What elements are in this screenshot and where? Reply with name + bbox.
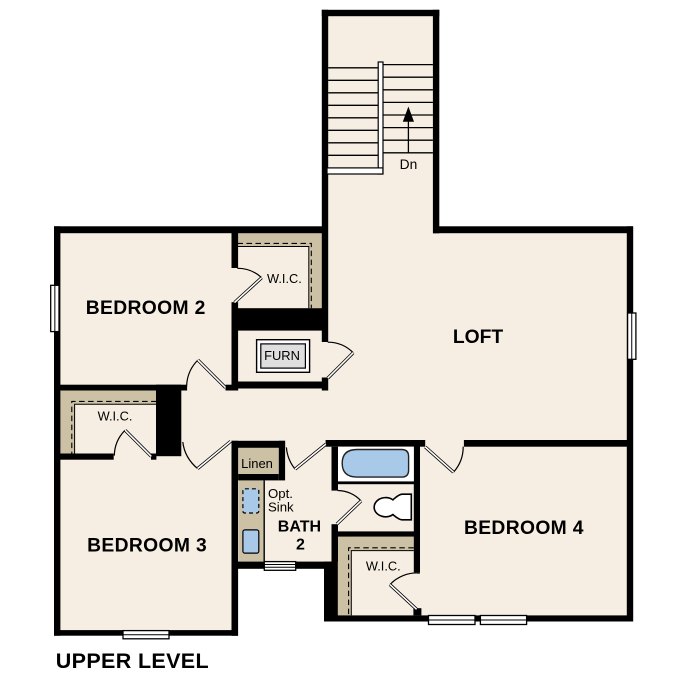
svg-text:W.I.C.: W.I.C. — [366, 558, 401, 573]
svg-text:Linen: Linen — [241, 456, 273, 471]
svg-text:BEDROOM 2: BEDROOM 2 — [86, 298, 206, 319]
svg-text:Dn: Dn — [400, 157, 418, 172]
svg-text:BATH: BATH — [278, 519, 321, 536]
svg-text:Sink: Sink — [268, 500, 294, 515]
svg-text:BEDROOM 3: BEDROOM 3 — [87, 536, 207, 557]
svg-text:W.I.C.: W.I.C. — [267, 271, 302, 286]
svg-text:BEDROOM 4: BEDROOM 4 — [464, 518, 584, 539]
svg-text:W.I.C.: W.I.C. — [98, 408, 133, 423]
svg-text:LOFT: LOFT — [453, 327, 504, 348]
svg-text:FURN: FURN — [264, 348, 300, 363]
svg-text:UPPER LEVEL: UPPER LEVEL — [56, 649, 209, 673]
svg-text:2: 2 — [296, 537, 305, 554]
